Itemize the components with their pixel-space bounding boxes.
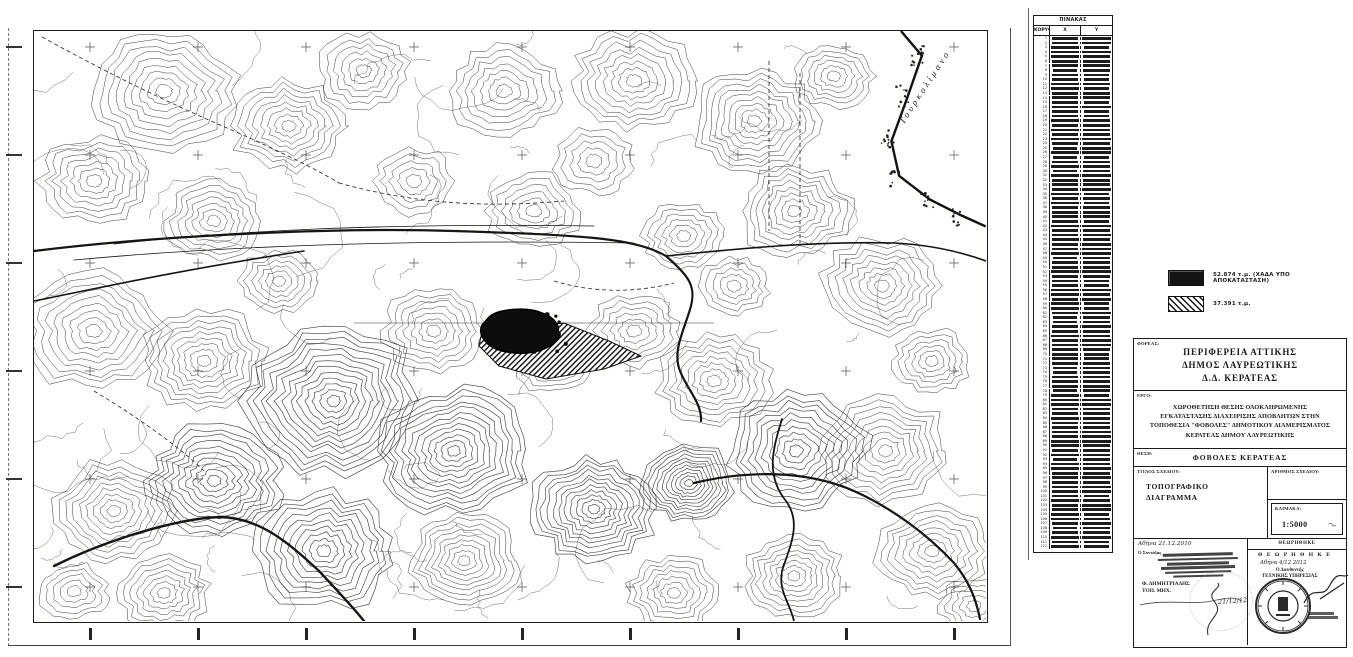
y-value-smudge: [1084, 353, 1110, 356]
y-value-smudge: [1082, 504, 1110, 507]
x-value-smudge: [1052, 312, 1078, 315]
y-value-smudge: [1084, 193, 1109, 196]
grid-tick: [305, 628, 308, 640]
x-value-smudge: [1051, 518, 1078, 521]
y-value-smudge: [1083, 321, 1111, 324]
y-value-smudge: [1083, 467, 1111, 470]
signature-scribble-left: [1134, 539, 1246, 643]
x-value-smudge: [1052, 37, 1078, 40]
y-value-smudge: [1083, 481, 1111, 484]
y-value-smudge: [1083, 444, 1109, 447]
solid-black-swatch: [1168, 270, 1204, 286]
x-value-smudge: [1052, 206, 1077, 209]
x-value-smudge: [1051, 119, 1078, 122]
x-value-smudge: [1051, 87, 1079, 90]
y-value-smudge: [1082, 243, 1110, 246]
y-value-smudge: [1083, 499, 1111, 502]
grid-tick: [6, 154, 22, 156]
coord-table-row: 112: [1034, 544, 1112, 549]
grid-tick: [6, 46, 22, 48]
y-value-smudge: [1083, 92, 1111, 95]
location-section: ΘΕΣΗ: ΦΟΒΟΛΕΣ ΚΕΡΑΤΕΑΣ: [1134, 449, 1346, 467]
x-value-smudge: [1052, 124, 1078, 127]
y-value-smudge: [1084, 74, 1110, 77]
x-value-smudge: [1051, 151, 1079, 154]
x-value-smudge: [1053, 156, 1078, 159]
x-value-smudge: [1052, 348, 1078, 351]
x-value-smudge: [1052, 261, 1079, 264]
y-value-smudge: [1083, 179, 1110, 182]
approval-signature: [1300, 573, 1350, 613]
legend-item-restoration-area: 52.874 τ.μ. (ΧΑΔΑ ΥΠΟ ΑΠΟΚΑΤΑΣΤΑΣΗ): [1168, 270, 1348, 286]
project-label: ΕΡΓΟ:: [1137, 393, 1152, 398]
y-value-smudge: [1083, 124, 1110, 127]
scale-label: ΚΛΙΜΑΚΑ:: [1275, 506, 1301, 511]
drawing-number-cell: ΑΡΙΘΜΟΣ ΣΧΕΔΙΟΥ:: [1268, 467, 1346, 500]
y-value-smudge: [1084, 156, 1110, 159]
x-value-smudge: [1053, 458, 1078, 461]
y-value-smudge: [1083, 170, 1110, 173]
legend-label: 37.391 τ.μ.: [1213, 301, 1251, 307]
y-value-smudge: [1083, 412, 1110, 415]
x-value-smudge: [1052, 220, 1079, 223]
x-value-smudge: [1052, 101, 1077, 104]
x-value-smudge: [1051, 55, 1079, 58]
y-value-smudge: [1084, 284, 1110, 287]
y-value-smudge: [1083, 422, 1110, 425]
y-value-smudge: [1082, 476, 1110, 479]
y-value-smudge: [1082, 151, 1110, 154]
y-value-smudge: [1084, 280, 1110, 283]
x-value-smudge: [1052, 60, 1078, 63]
vertex-number: 112: [1034, 544, 1050, 549]
x-value-smudge: [1051, 46, 1079, 49]
x-value-smudge: [1052, 197, 1078, 200]
x-value-smudge: [1052, 183, 1077, 186]
y-value-smudge: [1084, 302, 1110, 305]
y-value-smudge: [1082, 248, 1110, 251]
y-value-smudge: [1084, 101, 1110, 104]
project-line: ΧΩΡΟΘΕΤΗΣΗ ΘΕΣΗΣ ΟΛΟΚΛΗΡΩΜΕΝΗΣ: [1134, 403, 1346, 412]
x-value-smudge: [1052, 133, 1078, 136]
map-canvas: [34, 31, 986, 621]
x-value-smudge: [1052, 280, 1079, 283]
y-value-smudge: [1083, 215, 1110, 218]
x-value-smudge: [1052, 330, 1077, 333]
col-header-y: Υ: [1081, 26, 1112, 35]
x-value-smudge: [1051, 270, 1079, 273]
grid-tick: [6, 586, 22, 588]
x-value-smudge: [1052, 275, 1078, 278]
drawing-number-label: ΑΡΙΘΜΟΣ ΣΧΕΔΙΟΥ:: [1271, 469, 1320, 474]
x-value-smudge: [1052, 96, 1078, 99]
y-value-smudge: [1083, 531, 1110, 534]
col-header-x: Χ: [1050, 26, 1081, 35]
x-value-smudge: [1052, 238, 1079, 241]
y-value-smudge: [1082, 522, 1111, 525]
x-value-smudge: [1052, 42, 1077, 45]
y-value-smudge: [1083, 449, 1111, 452]
grid-tick: [521, 628, 524, 640]
x-value-smudge: [1052, 357, 1078, 360]
y-value-smudge: [1083, 133, 1110, 136]
x-value-smudge: [1052, 385, 1079, 388]
x-value-smudge: [1052, 431, 1079, 434]
x-value-smudge: [1052, 486, 1078, 489]
x-value-smudge: [1051, 302, 1079, 305]
x-value-smudge: [1051, 51, 1079, 54]
x-value-smudge: [1051, 394, 1078, 397]
y-value-smudge: [1083, 69, 1111, 72]
signature-section: Αθήνα 21.12.2010 Ο Συντάξας Φ. ΔΗΜΗΤΡΙΑΔ…: [1134, 539, 1346, 645]
x-value-smudge: [1052, 522, 1077, 525]
y-value-smudge: [1082, 225, 1111, 228]
approval-name-smudge: [1308, 611, 1338, 620]
y-value-smudge: [1083, 275, 1109, 278]
y-value-smudge: [1082, 174, 1111, 177]
x-value-smudge: [1052, 64, 1077, 67]
y-value-smudge: [1084, 307, 1110, 310]
agency-section: ΦΟΡΕΑΣ: ΠΕΡΙΦΕΡΕΙΑ ΑΤΤΙΚΗΣ ΔΗΜΟΣ ΛΑΥΡΕΩΤ…: [1134, 339, 1346, 391]
drawing-meta-cells: ΑΡΙΘΜΟΣ ΣΧΕΔΙΟΥ: ΚΛΙΜΑΚΑ: 1:5000 〜: [1268, 467, 1346, 538]
y-value-smudge: [1082, 431, 1111, 434]
x-value-smudge: [1053, 170, 1078, 173]
grid-tick: [737, 628, 740, 640]
x-value-smudge: [1052, 426, 1077, 429]
x-value-smudge: [1052, 531, 1078, 534]
scale-inner-box: ΚΛΙΜΑΚΑ: 1:5000 〜: [1271, 503, 1343, 535]
x-value-smudge: [1052, 380, 1078, 383]
x-value-smudge: [1053, 69, 1078, 72]
x-value-smudge: [1051, 403, 1079, 406]
y-value-smudge: [1084, 541, 1110, 544]
y-value-smudge: [1082, 37, 1110, 40]
x-value-smudge: [1051, 129, 1078, 132]
x-value-smudge: [1051, 193, 1078, 196]
y-value-smudge: [1083, 367, 1109, 370]
x-value-smudge: [1052, 412, 1077, 415]
y-value-smudge: [1084, 110, 1110, 113]
x-value-smudge: [1052, 495, 1078, 498]
drawing-info-section: ΤΙΤΛΟΣ ΣΧΕΔΙΟΥ: ΤΟΠΟΓΡΑΦΙΚΟ ΔΙΑΓΡΑΜΜΑ ΑΡ…: [1134, 467, 1346, 539]
y-value-smudge: [1084, 518, 1110, 521]
y-value-smudge: [1083, 119, 1109, 122]
y-value-smudge: [1082, 147, 1111, 150]
x-value-smudge: [1053, 316, 1078, 319]
x-value-smudge: [1051, 138, 1078, 141]
x-value-smudge: [1051, 252, 1079, 255]
y-value-smudge: [1084, 495, 1110, 498]
y-value-smudge: [1083, 60, 1110, 63]
y-value-smudge: [1083, 234, 1111, 237]
approval-stamp-text: Θ Ε Ω Ρ Η Θ Η Κ Ε: [1258, 552, 1332, 558]
y-value-smudge: [1082, 403, 1110, 406]
x-value-smudge: [1052, 422, 1079, 425]
x-value-smudge: [1052, 243, 1078, 246]
y-value-smudge: [1082, 252, 1111, 255]
x-value-smudge: [1053, 147, 1078, 150]
y-value-smudge: [1083, 266, 1109, 269]
x-value-smudge: [1052, 78, 1079, 81]
x-value-smudge: [1051, 440, 1079, 443]
x-value-smudge: [1052, 490, 1079, 493]
x-value-smudge: [1052, 339, 1077, 342]
agency-label: ΦΟΡΕΑΣ:: [1137, 341, 1160, 346]
y-value-smudge: [1082, 490, 1110, 493]
x-value-smudge: [1053, 371, 1078, 374]
grid-tick: [89, 628, 92, 640]
x-value-smudge: [1051, 335, 1079, 338]
y-value-smudge: [1083, 417, 1111, 420]
project-line: ΕΓΚΑΤΑΣΤΑΣΗΣ ΔΙΑΧΕΙΡΙΣΗΣ ΑΠΟΒΛΗΤΩΝ ΣΤΗΝ: [1134, 412, 1346, 421]
y-value-smudge: [1083, 330, 1111, 333]
y-value-smudge: [1084, 513, 1110, 516]
x-value-smudge: [1053, 367, 1078, 370]
x-value-smudge: [1051, 307, 1079, 310]
y-value-smudge: [1083, 183, 1110, 186]
grid-tick: [845, 628, 848, 640]
legend-item-facility-area: 37.391 τ.μ.: [1168, 296, 1348, 312]
y-value-smudge: [1084, 202, 1110, 205]
x-value-smudge: [1051, 513, 1078, 516]
y-value-smudge: [1083, 293, 1110, 296]
project-line: ΤΟΠΟΘΕΣΙΑ "ΦΟΒΟΛΕΣ" ΔΗΜΟΤΙΚΟΥ ΔΙΑΜΕΡΙΣΜΑ…: [1134, 421, 1346, 430]
y-value-smudge: [1082, 508, 1110, 511]
y-value-smudge: [1082, 325, 1111, 328]
y-value-smudge: [1083, 55, 1110, 58]
grid-tick: [6, 370, 22, 372]
x-value-smudge: [1051, 202, 1078, 205]
y-value-smudge: [1083, 64, 1109, 67]
map-frame: [33, 30, 988, 623]
y-value-smudge: [1083, 376, 1110, 379]
coord-sheet-edge-line: [1028, 8, 1029, 560]
y-value-smudge: [1084, 78, 1110, 81]
y-value-smudge: [1083, 463, 1111, 466]
y-value-smudge: [1083, 426, 1109, 429]
y-value-smudge: [1082, 106, 1111, 109]
agency-line: ΠΕΡΙΦΕΡΕΙΑ ΑΤΤΙΚΗΣ: [1134, 346, 1346, 359]
x-value-smudge: [1052, 284, 1077, 287]
x-value-smudge: [1052, 188, 1077, 191]
x-value-smudge: [1052, 449, 1078, 452]
x-value-smudge: [1052, 248, 1078, 251]
y-value-smudge: [1083, 362, 1110, 365]
y-value-smudge: [1083, 142, 1111, 145]
x-value-smudge: [1052, 211, 1078, 214]
x-value-smudge: [1053, 527, 1078, 530]
x-value-smudge: [1051, 293, 1078, 296]
x-value-smudge: [1052, 408, 1078, 411]
y-value-smudge: [1083, 316, 1111, 319]
x-value-smudge: [1052, 110, 1077, 113]
y-value-smudge: [1083, 129, 1110, 132]
x-value-smudge: [1053, 389, 1078, 392]
y-value-smudge: [1083, 161, 1109, 164]
grid-tick: [629, 628, 632, 640]
x-value-smudge: [1052, 179, 1078, 182]
grid-tick: [197, 628, 200, 640]
y-value-smudge: [1083, 211, 1111, 214]
y-value-smudge: [1084, 545, 1110, 548]
x-value-smudge: [1052, 115, 1077, 118]
location-value: ΦΟΒΟΛΕΣ ΚΕΡΑΤΕΑΣ: [1134, 449, 1346, 467]
coordinates-table-header: ΚΟΡΥΦΗ Χ Υ: [1034, 26, 1112, 36]
y-value-smudge: [1082, 42, 1110, 45]
y-value-smudge: [1083, 472, 1111, 475]
grid-tick: [6, 262, 22, 264]
scale-value: 1:5000: [1282, 520, 1308, 529]
sheet-bottom-edge-line: [8, 645, 1011, 646]
x-value-smudge: [1052, 344, 1077, 347]
approval-header: ΘΕΩΡΗΘΗΚΕ: [1248, 539, 1346, 550]
x-value-smudge: [1052, 229, 1077, 232]
sheet-right-edge-line: [1010, 28, 1011, 646]
author-cell: Αθήνα 21.12.2010 Ο Συντάξας Φ. ΔΗΜΗΤΡΙΑΔ…: [1134, 539, 1248, 645]
grid-tick: [413, 628, 416, 640]
x-value-smudge: [1052, 92, 1079, 95]
y-value-smudge: [1084, 220, 1110, 223]
y-value-smudge: [1083, 385, 1110, 388]
x-value-smudge: [1051, 83, 1078, 86]
y-value-smudge: [1084, 46, 1109, 49]
grid-tick: [953, 628, 956, 640]
coordinates-table: ΠΙΝΑΚΑΣ ΣΥΝΤΕΤΑΓΜΕΝΩΝ ΚΟΡΥΦΗ Χ Υ 1234567…: [1033, 15, 1113, 553]
y-value-smudge: [1083, 261, 1110, 264]
x-value-smudge: [1051, 417, 1079, 420]
legend: 52.874 τ.μ. (ΧΑΔΑ ΥΠΟ ΑΠΟΚΑΤΑΣΤΑΣΗ) 37.3…: [1168, 270, 1348, 322]
x-value-smudge: [1051, 499, 1079, 502]
y-value-smudge: [1083, 454, 1110, 457]
y-value-smudge: [1083, 206, 1111, 209]
x-value-smudge: [1051, 463, 1078, 466]
y-value-smudge: [1083, 380, 1110, 383]
x-value-smudge: [1051, 444, 1078, 447]
y-value-smudge: [1084, 357, 1110, 360]
x-value-smudge: [1052, 161, 1079, 164]
x-value-smudge: [1052, 325, 1077, 328]
drawing-title-label: ΤΙΤΛΟΣ ΣΧΕΔΙΟΥ:: [1137, 469, 1180, 474]
x-value-smudge: [1051, 536, 1079, 539]
x-value-smudge: [1051, 454, 1078, 457]
y-value-smudge: [1083, 229, 1111, 232]
x-value-smudge: [1052, 504, 1078, 507]
y-value-smudge: [1082, 344, 1111, 347]
col-header-vertex: ΚΟΡΥΦΗ: [1034, 26, 1050, 35]
scale-cell: ΚΛΙΜΑΚΑ: 1:5000 〜: [1268, 500, 1346, 538]
y-value-smudge: [1083, 83, 1110, 86]
x-value-smudge: [1052, 508, 1077, 511]
y-value-smudge: [1083, 458, 1110, 461]
x-value-smudge: [1052, 541, 1078, 544]
y-value-smudge: [1082, 536, 1110, 539]
y-value-smudge: [1082, 486, 1110, 489]
x-value-smudge: [1052, 481, 1079, 484]
project-section: ΕΡΓΟ: ΧΩΡΟΘΕΤΗΣΗ ΘΕΣΗΣ ΟΛΟΚΛΗΡΩΜΕΝΗΣ ΕΓΚ…: [1134, 391, 1346, 449]
x-value-smudge: [1052, 435, 1078, 438]
coordinates-table-body: 1234567891011121314151617181920212223242…: [1034, 36, 1112, 552]
y-value-smudge: [1083, 335, 1110, 338]
y-value-smudge: [1084, 394, 1110, 397]
y-value-smudge: [1083, 389, 1109, 392]
y-value-smudge: [1082, 339, 1110, 342]
x-value-smudge: [1051, 467, 1079, 470]
y-value-smudge: [1082, 312, 1111, 315]
y-value-smudge: [1083, 238, 1111, 241]
y-value-smudge: [1083, 348, 1111, 351]
x-value-smudge: [1052, 476, 1077, 479]
agency-line: Δ.Δ. ΚΕΡΑΤΕΑΣ: [1134, 372, 1346, 385]
agency-line: ΔΗΜΟΣ ΛΑΥΡΕΩΤΙΚΗΣ: [1134, 359, 1346, 372]
x-value-smudge: [1053, 321, 1078, 324]
x-value-smudge: [1052, 106, 1078, 109]
y-value-smudge: [1082, 440, 1110, 443]
location-label: ΘΕΣΗ:: [1137, 451, 1153, 456]
x-value-smudge: [1052, 234, 1079, 237]
y-value-smudge: [1083, 408, 1109, 411]
x-value-smudge: [1051, 399, 1078, 402]
title-block: ΦΟΡΕΑΣ: ΠΕΡΙΦΕΡΕΙΑ ΑΤΤΙΚΗΣ ΔΗΜΟΣ ΛΑΥΡΕΩΤ…: [1133, 338, 1347, 648]
x-value-smudge: [1052, 472, 1078, 475]
project-line: ΚΕΡΑΤΕΑΣ ΔΗΜΟΥ ΛΑΥΡΕΩΤΙΚΗΣ: [1134, 431, 1346, 440]
y-value-smudge: [1083, 371, 1111, 374]
x-value-smudge: [1052, 353, 1078, 356]
sheet-left-fold-line: [8, 28, 9, 646]
x-value-smudge: [1051, 545, 1078, 548]
grid-tick: [6, 478, 22, 480]
y-value-smudge: [1083, 165, 1110, 168]
y-value-smudge: [1083, 197, 1109, 200]
y-value-smudge: [1082, 188, 1111, 191]
y-value-smudge: [1082, 298, 1111, 301]
drawing-title-value: ΤΟΠΟΓΡΑΦΙΚΟ ΔΙΑΓΡΑΜΜΑ: [1146, 481, 1267, 503]
x-value-smudge: [1053, 257, 1078, 260]
x-value-smudge: [1052, 266, 1077, 269]
x-value-smudge: [1051, 174, 1079, 177]
y-value-smudge: [1084, 87, 1110, 90]
x-value-smudge: [1052, 142, 1078, 145]
y-value-smudge: [1082, 138, 1110, 141]
y-value-smudge: [1084, 115, 1110, 118]
x-value-smudge: [1051, 225, 1078, 228]
coordinates-table-title: ΠΙΝΑΚΑΣ ΣΥΝΤΕΤΑΓΜΕΝΩΝ: [1034, 16, 1112, 26]
approval-date: Αθήνα 4/12 2012: [1260, 560, 1307, 566]
x-value-smudge: [1051, 289, 1078, 292]
diagonal-hatch-swatch: [1168, 296, 1204, 312]
y-value-smudge: [1082, 289, 1111, 292]
legend-label: 52.874 τ.μ. (ΧΑΔΑ ΥΠΟ ΑΠΟΚΑΤΑΣΤΑΣΗ): [1213, 272, 1348, 284]
pencil-mark: 〜: [1326, 517, 1338, 532]
x-value-smudge: [1052, 298, 1078, 301]
approval-cell: ΘΕΩΡΗΘΗΚΕ Θ Ε Ω Ρ Η Θ Η Κ Ε Αθήνα 4/12 2…: [1248, 539, 1346, 645]
y-value-smudge: [1083, 96, 1109, 99]
x-value-smudge: [1052, 74, 1078, 77]
y-value-smudge: [1082, 51, 1110, 54]
x-value-smudge: [1052, 376, 1077, 379]
y-value-smudge: [1082, 399, 1111, 402]
y-value-smudge: [1083, 527, 1111, 530]
y-value-smudge: [1082, 270, 1110, 273]
x-value-smudge: [1052, 362, 1079, 365]
x-value-smudge: [1052, 215, 1079, 218]
x-value-smudge: [1051, 165, 1078, 168]
y-value-smudge: [1082, 435, 1111, 438]
y-value-smudge: [1083, 257, 1111, 260]
drawing-title-cell: ΤΙΤΛΟΣ ΣΧΕΔΙΟΥ: ΤΟΠΟΓΡΑΦΙΚΟ ΔΙΑΓΡΑΜΜΑ: [1134, 467, 1268, 538]
